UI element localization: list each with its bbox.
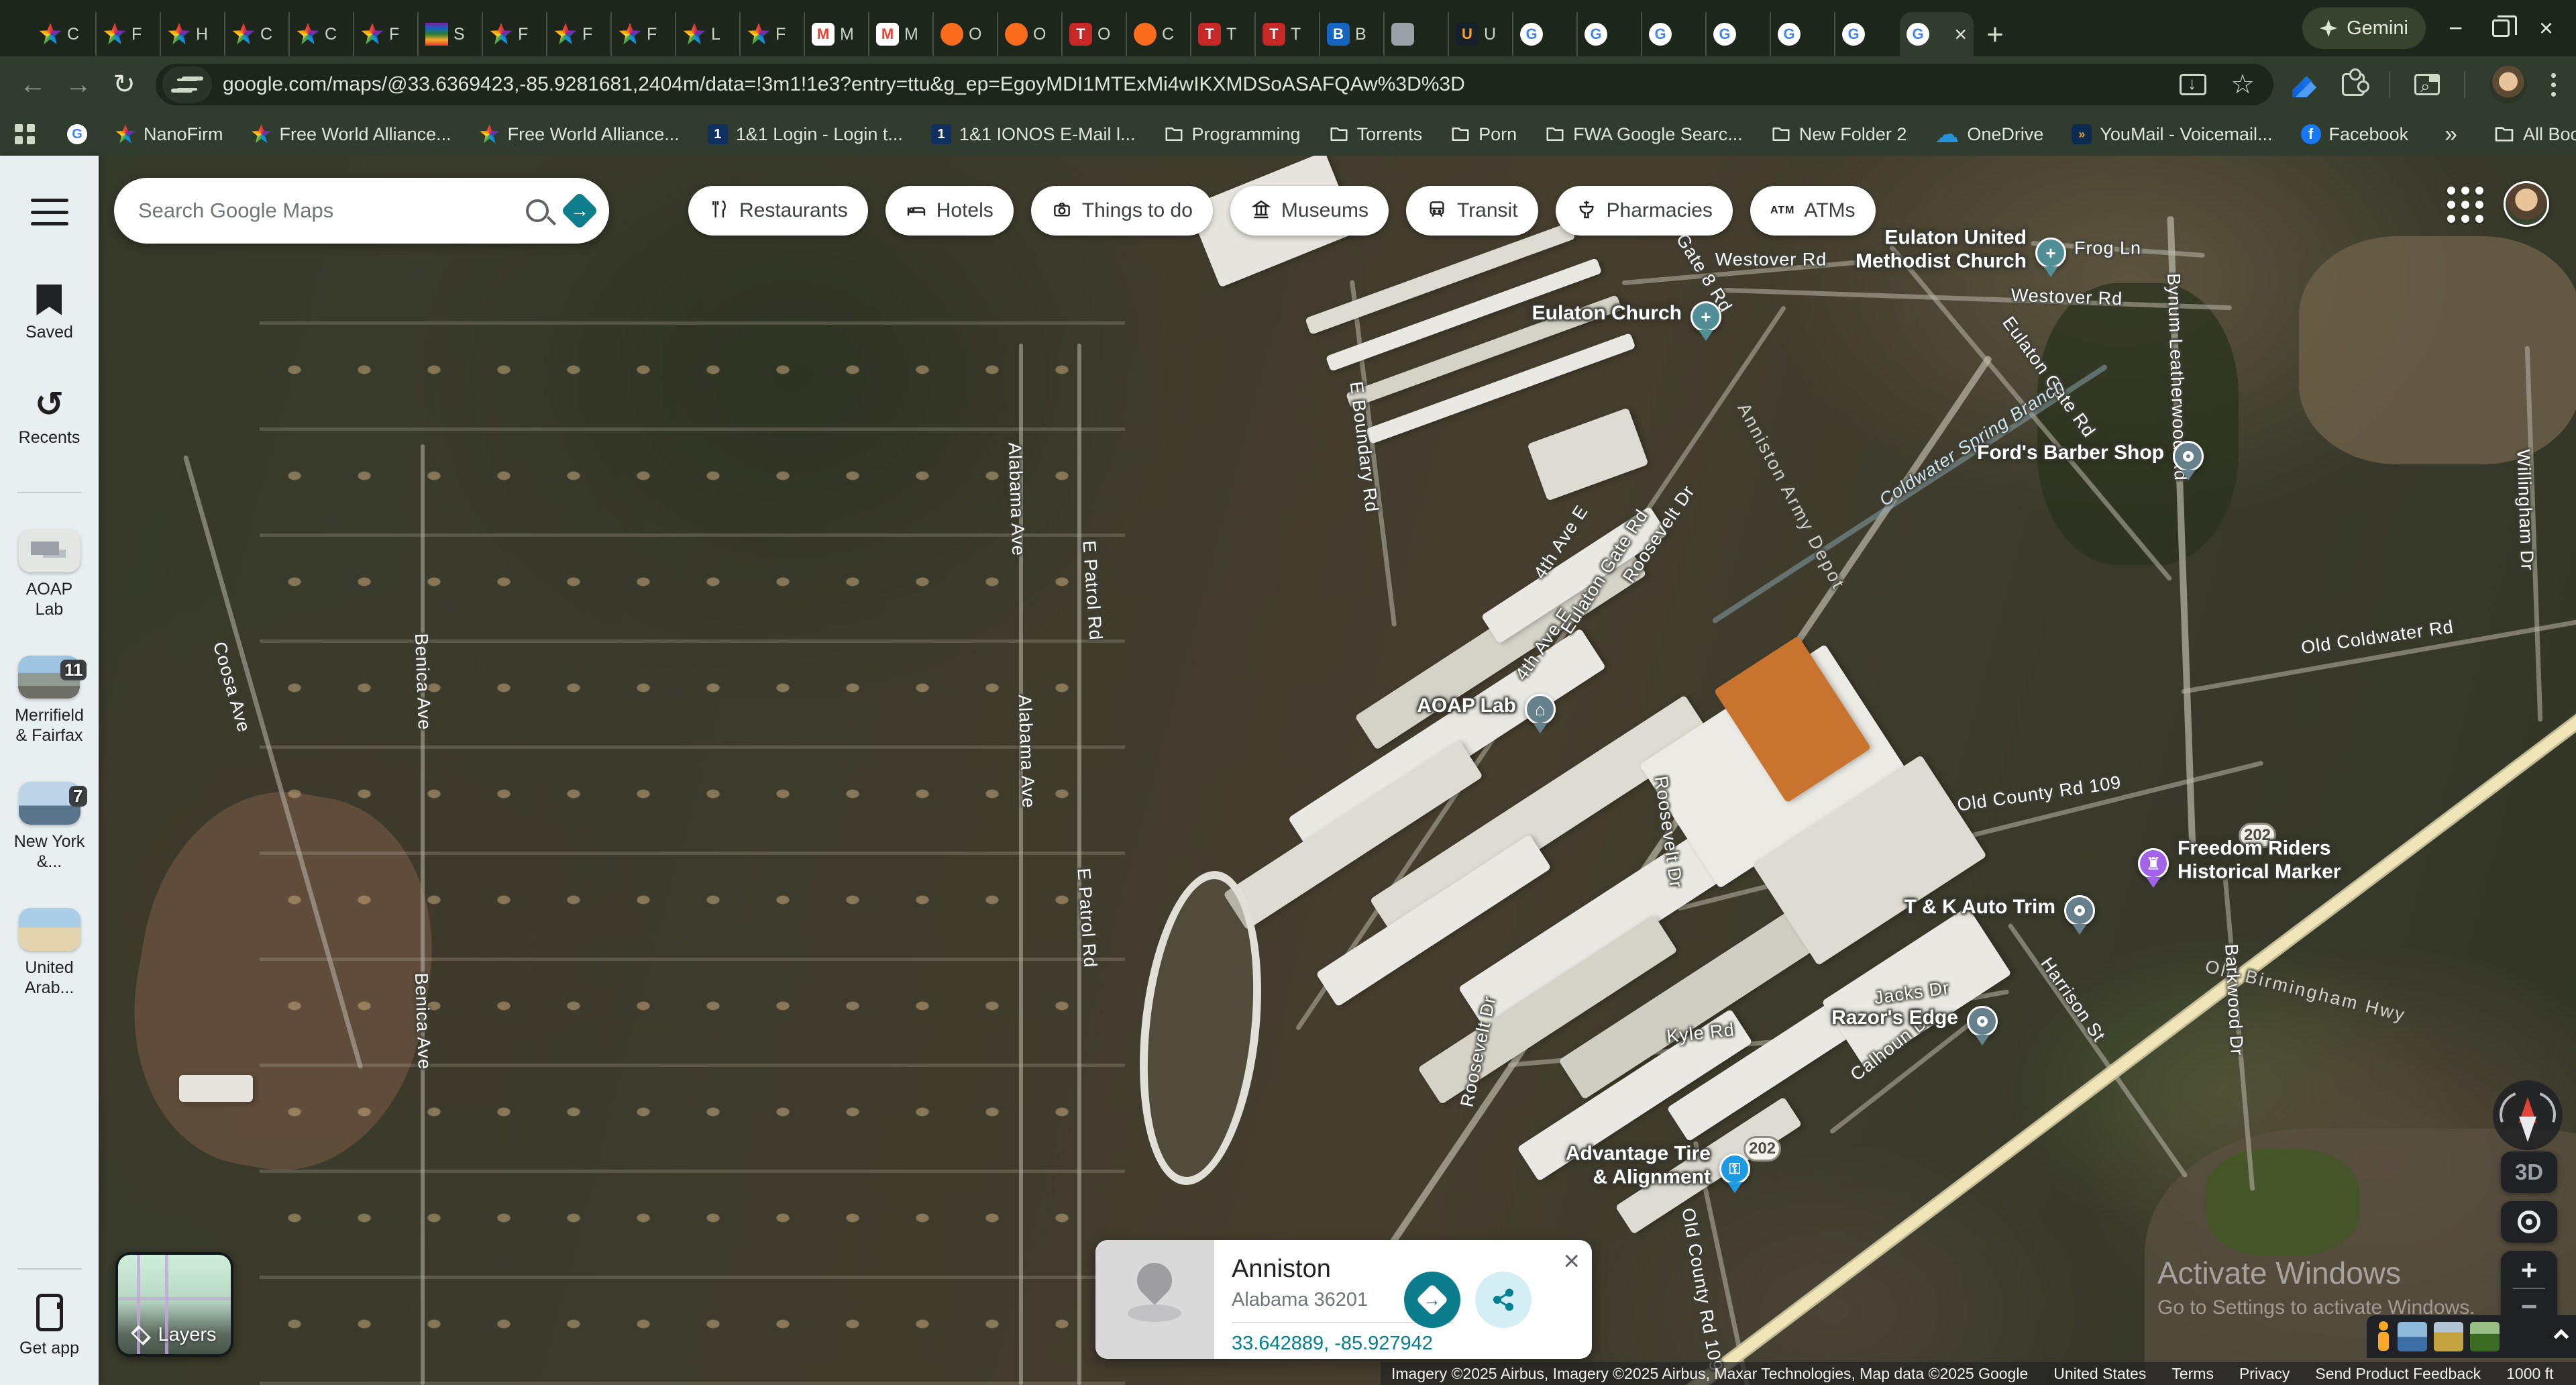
map-pin-freedom-riders[interactable]: ♜: [2138, 848, 2169, 879]
browser-tab[interactable]: TT: [1191, 12, 1256, 56]
chip-transit[interactable]: Transit: [1406, 186, 1538, 236]
facebook-icon: f: [2301, 124, 2321, 144]
tab-title: F: [131, 25, 142, 44]
bookmark-item[interactable]: Porn: [1438, 117, 1529, 151]
chip-things-to-do[interactable]: Things to do: [1031, 186, 1213, 236]
folder-icon: [1450, 124, 1470, 144]
reload-button[interactable]: ↻: [105, 65, 144, 104]
map-pin-t-k-auto-trim[interactable]: [2064, 895, 2095, 926]
bookmark-item[interactable]: 11&1 IONOS E-Mail l...: [919, 117, 1148, 151]
recent-thumbnail: 11: [18, 656, 80, 699]
star-favicon: [39, 23, 62, 46]
browser-tab[interactable]: F: [547, 12, 612, 56]
recent-thumbnail: [19, 529, 80, 572]
bookmark-item[interactable]: Free World Alliance...: [468, 117, 692, 151]
search-icon[interactable]: [526, 199, 549, 222]
bookmarks-bar: GNanoFirmFree World Alliance...Free Worl…: [0, 113, 2576, 156]
toolbar-divider: [2464, 71, 2465, 98]
bookmark-item[interactable]: Torrents: [1317, 117, 1435, 151]
monument-icon: ♜: [2145, 855, 2161, 872]
card-directions-button[interactable]: →: [1404, 1272, 1460, 1328]
browser-tab[interactable]: F: [354, 12, 419, 56]
church-cross-icon: +: [1701, 308, 1711, 325]
saved-label: Saved: [25, 322, 73, 342]
recents-label: Recents: [19, 427, 80, 448]
sidebar-recent-item[interactable]: UnitedArab...: [19, 908, 80, 998]
layers-icon: [131, 1325, 152, 1345]
road-label: Old County Rd 109: [1677, 1207, 1726, 1373]
star-favicon: [480, 124, 500, 144]
browser-tab[interactable]: F: [612, 12, 676, 56]
category-chips: RestaurantsHotelsThings to doMuseumsTran…: [688, 186, 1876, 236]
bookmark-label: Free World Alliance...: [280, 124, 451, 145]
browser-tab[interactable]: MM: [869, 12, 934, 56]
maps-sidebar: Saved ↺ Recents AOAPLab11Merrifield& Fai…: [0, 156, 99, 1385]
things-icon: [1051, 199, 1073, 223]
pin-dot-icon: [2074, 905, 2085, 916]
chip-label: ATMs: [1804, 199, 1855, 222]
chip-label: Museums: [1281, 199, 1368, 222]
bookmark-item[interactable]: Programming: [1152, 117, 1313, 151]
browser-tab[interactable]: TT: [1256, 12, 1320, 56]
tab-title: F: [389, 25, 399, 44]
dark-favicon: U: [1456, 23, 1479, 46]
bookmark-label: OneDrive: [1967, 124, 2043, 145]
browser-tab[interactable]: G: [1771, 12, 1835, 56]
chip-label: Things to do: [1082, 199, 1193, 222]
transit-icon: [1426, 199, 1448, 223]
zoom-in-button[interactable]: +: [2521, 1256, 2538, 1284]
tab-title: C: [67, 25, 79, 44]
all-bookmarks-button[interactable]: All Bookmarks: [2481, 117, 2576, 151]
orange-favicon: [1134, 23, 1157, 46]
google-favicon: G: [1520, 23, 1543, 46]
compass-control[interactable]: [2493, 1080, 2563, 1150]
road-label: E Boundary Rd: [1346, 380, 1383, 513]
bookmark-item[interactable]: New Folder 2: [1759, 117, 1919, 151]
browser-tab[interactable]: C: [290, 12, 354, 56]
apps-shortcut-icon[interactable]: [15, 121, 35, 148]
browser-tab[interactable]: C: [32, 12, 97, 56]
poi-label: Eulaton Church: [1532, 302, 1682, 325]
browser-tab[interactable]: G: [1835, 12, 1900, 56]
search-input[interactable]: Search Google Maps: [138, 199, 526, 223]
directions-button[interactable]: →: [561, 192, 599, 230]
browser-tab[interactable]: G: [1513, 12, 1578, 56]
get-app-phone-icon: [36, 1294, 63, 1331]
bookmark-label: Torrents: [1357, 124, 1423, 145]
road-label: Willingham Dr: [2512, 449, 2537, 571]
gmail-favicon: M: [812, 23, 835, 46]
tab-title: S: [453, 25, 465, 44]
route-shield: 202: [1743, 1136, 1781, 1162]
map-pin-aoap-lab[interactable]: ⌂: [1525, 694, 1556, 725]
all-bookmarks-label: All Bookmarks: [2523, 124, 2576, 145]
bookmark-label: New Folder 2: [1799, 124, 1907, 145]
tab-title: T: [1291, 25, 1301, 44]
sidebar-recent-item[interactable]: 7New York&...: [14, 782, 85, 872]
atm-icon: ATM: [1770, 205, 1794, 217]
star-favicon: [747, 23, 770, 46]
toolbar-divider: [2389, 71, 2390, 98]
recent-label: AOAPLab: [26, 579, 72, 619]
browser-tab[interactable]: F: [483, 12, 547, 56]
bookmark-label: Porn: [1479, 124, 1517, 145]
onedrive-icon: ☁: [1935, 120, 1959, 148]
chip-pharmacies[interactable]: Pharmacies: [1556, 186, 1733, 236]
browser-tab[interactable]: L: [676, 12, 741, 56]
restaurants-icon: [708, 199, 730, 223]
recent-label: Merrifield& Fairfax: [15, 705, 84, 746]
profile-avatar[interactable]: [2489, 66, 2527, 103]
oneone-favicon: 1: [931, 124, 951, 144]
crosshair-icon: [2518, 1211, 2540, 1233]
map-canvas[interactable]: Frog LnWestover RdWestover RdGate 8 RdEu…: [99, 156, 2576, 1385]
sidebar-divider: [17, 1268, 82, 1270]
sidebar-item-recents[interactable]: ↺ Recents: [19, 389, 80, 448]
tab-title: U: [1484, 25, 1496, 44]
browser-toolbar: ← → ↻ google.com/maps/@33.6369423,-85.92…: [0, 56, 2576, 113]
chip-label: Restaurants: [739, 199, 848, 222]
browser-tab[interactable]: MM: [805, 12, 869, 56]
browser-tab[interactable]: O: [934, 12, 998, 56]
address-bar[interactable]: google.com/maps/@33.6369423,-85.9281681,…: [156, 64, 2273, 105]
pencil-extension-icon[interactable]: [2292, 72, 2318, 97]
star-favicon: [361, 23, 384, 46]
pin-dot-icon: [1977, 1016, 1988, 1027]
tab-title: B: [1355, 25, 1366, 44]
google-favicon: G: [1713, 23, 1736, 46]
red-favicon: T: [1069, 23, 1092, 46]
attribution-link[interactable]: Send Product Feedback: [2315, 1365, 2481, 1383]
bookmark-label: Free World Alliance...: [508, 124, 680, 145]
map-pin-ford-s-barber-shop[interactable]: [2173, 441, 2204, 472]
star-favicon: [168, 23, 191, 46]
expand-strip-chevron-icon[interactable]: [2556, 1331, 2567, 1342]
poi-label: AOAP Lab: [1417, 695, 1516, 718]
browser-menu-icon[interactable]: [2551, 73, 2556, 97]
browser-tab[interactable]: [1385, 12, 1449, 56]
star-favicon: [554, 23, 577, 46]
imagery-attribution: Imagery ©2025 Airbus, Imagery ©2025 Airb…: [1391, 1365, 2028, 1383]
place-info-card: Anniston Alabama 36201 33.642889, -85.92…: [1095, 1240, 1592, 1359]
bookmark-item[interactable]: FWA Google Searc...: [1533, 117, 1755, 151]
orange-favicon: [1005, 23, 1028, 46]
menu-hamburger-icon[interactable]: [31, 199, 68, 225]
browser-tab[interactable]: TO: [1063, 12, 1127, 56]
poi-label: Freedom RidersHistorical Marker: [2178, 837, 2341, 884]
folder-icon: [1771, 124, 1791, 144]
browser-tab[interactable]: G: [1642, 12, 1707, 56]
road-label: Frog Ln: [2074, 238, 2141, 259]
browser-tab[interactable]: G: [1578, 12, 1642, 56]
road-label: Benica Ave: [411, 972, 435, 1070]
map-attribution-bar: Imagery ©2025 Airbus, Imagery ©2025 Airb…: [1381, 1362, 2576, 1385]
back-button[interactable]: ←: [13, 65, 52, 104]
tab-title: F: [647, 25, 657, 44]
chip-label: Hotels: [936, 199, 994, 222]
folder-icon: [1545, 124, 1565, 144]
my-location-button[interactable]: [2501, 1201, 2557, 1243]
bookmark-item[interactable]: Free World Alliance...: [239, 117, 464, 151]
red-favicon: T: [1263, 23, 1285, 46]
green-field-patch: [2205, 1149, 2359, 1256]
bunker-field-texture: [260, 317, 1125, 1385]
road-label: Coosa Ave: [209, 639, 254, 735]
forest-patch: [2037, 283, 2239, 565]
photo-thumbnail[interactable]: [2470, 1322, 2500, 1351]
browser-tab[interactable]: C: [1127, 12, 1191, 56]
road-label: Anniston Army Depot: [1733, 400, 1849, 594]
road-label: Old County Rd 109: [1956, 772, 2123, 815]
gmail-favicon: M: [876, 23, 899, 46]
bookmark-item[interactable]: ☁OneDrive: [1923, 117, 2055, 151]
road-label: Alabama Ave: [1014, 695, 1039, 809]
bookmark-label: Facebook: [2329, 124, 2409, 145]
chip-restaurants[interactable]: Restaurants: [688, 186, 868, 236]
bookmark-item[interactable]: G: [55, 117, 99, 151]
attribution-link[interactable]: Terms: [2171, 1365, 2214, 1383]
scale-label: 1000 ft: [2506, 1365, 2553, 1383]
browser-tab[interactable]: S: [419, 12, 483, 56]
browser-tab[interactable]: G: [1707, 12, 1771, 56]
folder-icon: [1164, 124, 1184, 144]
close-window-button[interactable]: ×: [2539, 14, 2553, 42]
tab-title: O: [969, 25, 981, 44]
share-icon: [1491, 1288, 1515, 1312]
recents-history-icon: ↺: [35, 389, 64, 421]
rainbow-favicon: [425, 23, 448, 46]
bookmark-label: YouMail - Voicemail...: [2100, 124, 2272, 145]
map-pin-razor-s-edge[interactable]: [1967, 1006, 1998, 1037]
gemini-label: Gemini: [2347, 17, 2408, 40]
chip-museums[interactable]: Museums: [1230, 186, 1389, 236]
recent-thumbnail: 7: [19, 782, 80, 825]
google-favicon: G: [67, 124, 87, 144]
extensions-puzzle-icon[interactable]: [2342, 73, 2365, 96]
layers-label: Layers: [158, 1324, 216, 1346]
star-favicon: [297, 23, 319, 46]
oneone-favicon: 1: [708, 124, 728, 144]
browser-tab[interactable]: F: [741, 12, 805, 56]
tab-title: F: [775, 25, 786, 44]
youmail-icon: »: [2072, 124, 2092, 144]
tab-title: T: [1226, 25, 1236, 44]
browser-tab-bar: CFHCCFSFFFLFMMMMOOTOCTTTTBBUUGGGGGG G× +…: [0, 0, 2576, 56]
map-pin-eulaton-church[interactable]: +: [1690, 301, 1721, 332]
road-label: Old Coldwater Rd: [2300, 617, 2455, 659]
attribution-link[interactable]: United States: [2053, 1365, 2146, 1383]
poi-label: Razor's Edge: [1831, 1007, 1958, 1030]
chip-label: Transit: [1457, 199, 1518, 222]
layers-button[interactable]: Layers: [115, 1252, 233, 1357]
bookmark-label: 1&1 Login - Login t...: [736, 124, 903, 145]
folder-icon: [1329, 124, 1349, 144]
bookmark-label: 1&1 IONOS E-Mail l...: [959, 124, 1136, 145]
google-favicon: G: [1907, 23, 1929, 46]
church-cross-icon: +: [2045, 244, 2055, 262]
restore-button[interactable]: [2492, 19, 2510, 37]
new-tab-button[interactable]: +: [1974, 13, 2017, 56]
bookmark-item[interactable]: NanoFirm: [103, 117, 235, 151]
map-pin-advantage-tire[interactable]: ⚿: [1719, 1153, 1750, 1184]
star-favicon: [252, 124, 272, 144]
browser-tab[interactable]: O: [998, 12, 1063, 56]
google-apps-grid-icon[interactable]: [2443, 183, 2487, 227]
tab-title: O: [1097, 25, 1110, 44]
gemini-sparkle-icon: [2320, 19, 2337, 37]
poi-label: T & K Auto Trim: [1904, 896, 2055, 919]
star-favicon: [103, 23, 126, 46]
sidebar-recent-item[interactable]: 11Merrifield& Fairfax: [15, 656, 84, 746]
forward-button[interactable]: →: [59, 65, 98, 104]
gemini-button[interactable]: Gemini: [2302, 7, 2426, 49]
browser-tab[interactable]: C: [225, 12, 290, 56]
tab-title: C: [260, 25, 272, 44]
star-favicon: [619, 23, 641, 46]
activate-windows-watermark: Activate Windows Go to Settings to activ…: [2157, 1255, 2475, 1319]
3d-toggle-button[interactable]: 3D: [2501, 1151, 2557, 1193]
recent-label: New York&...: [14, 831, 85, 872]
install-app-icon[interactable]: [2180, 74, 2206, 95]
recent-count-badge: 11: [60, 660, 87, 680]
bookmarks-overflow-chevron[interactable]: »: [2431, 121, 2471, 148]
tab-title: C: [325, 25, 337, 44]
minimize-button[interactable]: −: [2449, 14, 2463, 42]
zoom-divider: [2513, 1288, 2545, 1289]
hotels-icon: [906, 199, 927, 223]
road-label: Barkwood Dr: [2220, 943, 2247, 1056]
search-tabs-icon[interactable]: [2414, 74, 2440, 95]
tab-close-icon[interactable]: ×: [1954, 23, 1967, 45]
card-close-button[interactable]: ×: [1563, 1247, 1580, 1275]
chip-hotels[interactable]: Hotels: [885, 186, 1014, 236]
star-favicon: [232, 23, 255, 46]
saved-bookmark-icon: [36, 285, 62, 315]
maps-search-bar[interactable]: Search Google Maps →: [114, 178, 609, 244]
sidebar-item-saved[interactable]: Saved: [25, 285, 73, 342]
attribution-link[interactable]: Privacy: [2239, 1365, 2290, 1383]
lock-icon: ⚿: [1729, 1162, 1741, 1176]
tab-title: H: [196, 25, 208, 44]
tab-title: M: [840, 25, 854, 44]
road-label: Alabama Ave: [1004, 442, 1029, 557]
bookmark-item[interactable]: fFacebook: [2289, 117, 2421, 151]
bookmark-label: Programming: [1192, 124, 1301, 145]
browser-tab[interactable]: BB: [1320, 12, 1385, 56]
recent-count-badge: 7: [69, 786, 87, 807]
bookmark-star-icon[interactable]: ☆: [2231, 69, 2255, 100]
map-pin-eulaton-united[interactable]: +: [2035, 238, 2066, 268]
tab-title: O: [1033, 25, 1046, 44]
photo-favicon: [1391, 23, 1414, 46]
browser-tab[interactable]: UU: [1449, 12, 1513, 56]
lab-building-icon: ⌂: [1535, 701, 1546, 718]
sidebar-recent-item[interactable]: AOAPLab: [19, 529, 80, 619]
google-favicon: G: [1585, 23, 1607, 46]
poi-label: Ford's Barber Shop: [1977, 442, 2164, 465]
watermark-line1: Activate Windows: [2157, 1255, 2475, 1291]
road-label: Benica Ave: [411, 633, 435, 731]
photo-thumbnail[interactable]: [2434, 1322, 2463, 1351]
google-favicon: G: [1778, 23, 1801, 46]
bookmark-label: NanoFirm: [144, 124, 223, 145]
bookmark-item[interactable]: 11&1 Login - Login t...: [696, 117, 915, 151]
google-favicon: G: [1649, 23, 1672, 46]
tab-title: F: [518, 25, 528, 44]
browser-tab[interactable]: F: [97, 12, 161, 56]
star-favicon: [683, 23, 706, 46]
star-favicon: [115, 124, 136, 144]
site-info-button[interactable]: [162, 66, 212, 103]
poi-label: Advantage Tire& Alignment: [1566, 1143, 1711, 1189]
pegman-icon[interactable]: [2376, 1321, 2391, 1352]
tab-title: F: [582, 25, 592, 44]
card-share-button[interactable]: [1475, 1272, 1532, 1328]
account-avatar[interactable]: [2504, 181, 2549, 227]
tab-title: L: [711, 25, 720, 44]
imagery-strip[interactable]: [2367, 1315, 2576, 1358]
bookmark-item[interactable]: »YouMail - Voicemail...: [2059, 117, 2284, 151]
pin-dot-icon: [2183, 451, 2194, 462]
orange-favicon: [941, 23, 963, 46]
url-text[interactable]: google.com/maps/@33.6369423,-85.9281681,…: [223, 73, 1465, 96]
chip-atms[interactable]: ATMATMs: [1750, 186, 1876, 236]
pharmacies-icon: [1576, 199, 1597, 223]
road-label: Westover Rd: [2010, 285, 2123, 310]
road-label: Harrison St: [2036, 954, 2109, 1045]
tab-title: M: [904, 25, 918, 44]
photo-thumbnail[interactable]: [2398, 1322, 2427, 1351]
place-coordinates[interactable]: 33.642889, -85.927942: [1232, 1333, 1592, 1355]
museums-icon: [1250, 199, 1272, 223]
tab-title: C: [1162, 25, 1174, 44]
place-thumbnail[interactable]: [1095, 1240, 1214, 1359]
poi-label: Eulaton UnitedMethodist Church: [1856, 227, 2027, 273]
recent-label: UnitedArab...: [25, 958, 74, 998]
bookmark-label: FWA Google Searc...: [1573, 124, 1743, 145]
road-label: Westover Rd: [1715, 250, 1827, 270]
red-favicon: T: [1198, 23, 1221, 46]
folder-icon: [2493, 123, 2515, 145]
recent-thumbnail: [19, 908, 80, 951]
star-favicon: [490, 23, 513, 46]
get-app-label[interactable]: Get app: [19, 1338, 79, 1358]
chip-label: Pharmacies: [1607, 199, 1713, 222]
blue-favicon: B: [1327, 23, 1350, 46]
tab-strip: CFHCCFSFFFLFMMMMOOTOCTTTTBBUUGGGGGG: [0, 12, 1900, 56]
field-patch: [2299, 236, 2576, 464]
browser-tab[interactable]: H: [161, 12, 225, 56]
google-favicon: G: [1842, 23, 1865, 46]
tune-icon: [177, 77, 197, 92]
active-tab[interactable]: G×: [1900, 12, 1974, 56]
